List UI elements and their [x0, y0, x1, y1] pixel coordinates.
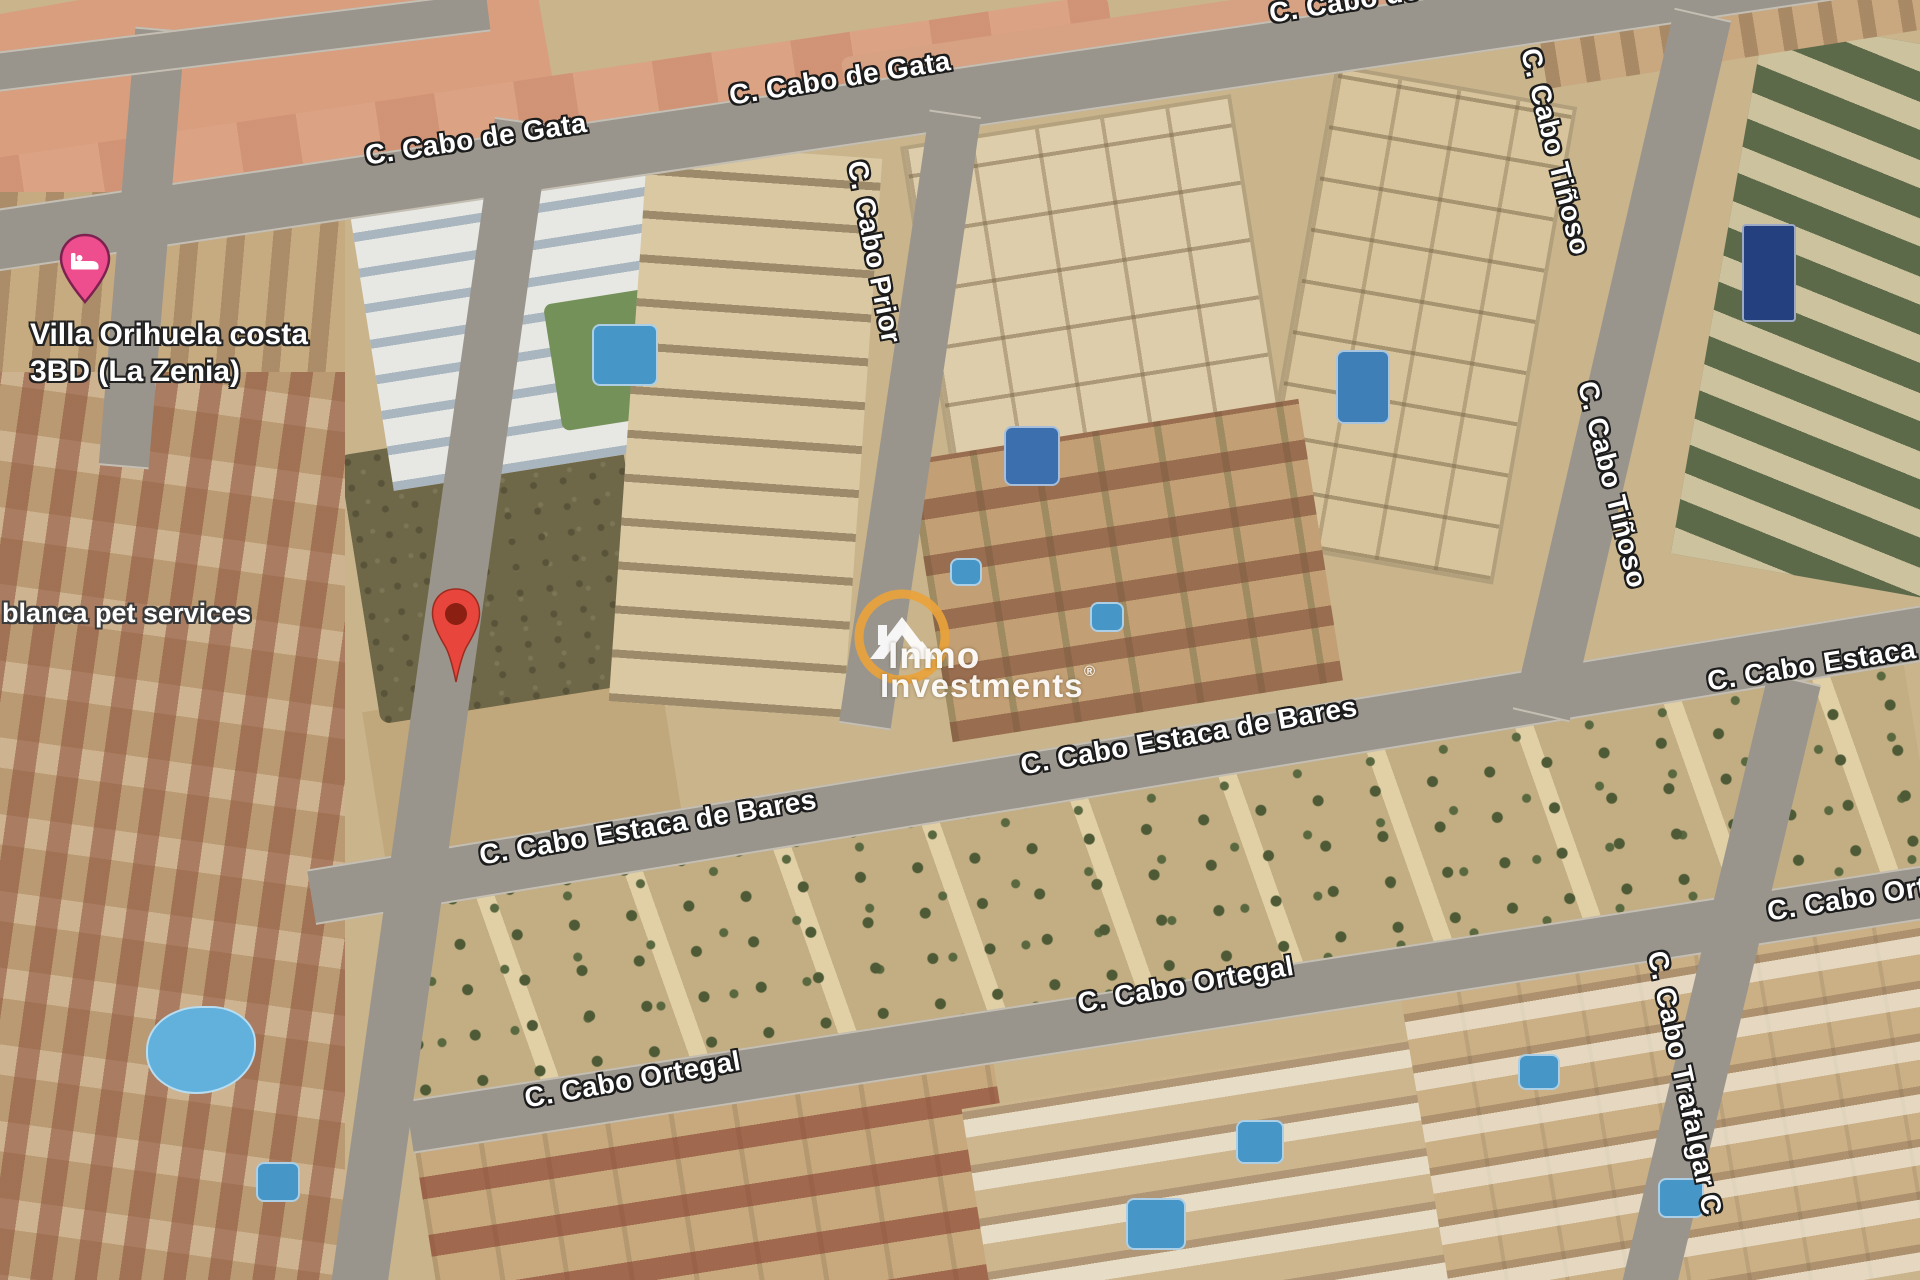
swimming-pool: [256, 1162, 300, 1202]
poi-label-line2: 3BD (La Zenia): [30, 353, 308, 390]
building-cluster-left-residential: [0, 372, 345, 1280]
swimming-pool: [1004, 426, 1060, 486]
swimming-pool: [950, 558, 982, 586]
poi-label-villa-orihuela[interactable]: Villa Orihuela costa 3BD (La Zenia): [30, 316, 308, 390]
swimming-pool: [1236, 1120, 1284, 1164]
poi-label-line1: Villa Orihuela costa: [30, 316, 308, 353]
destination-marker-icon[interactable]: [428, 586, 484, 686]
lodging-pin-icon[interactable]: [58, 232, 112, 306]
swimming-pool: [1742, 224, 1796, 322]
swimming-pool: [592, 324, 658, 386]
satellite-map[interactable]: C. Cabo de Gata C. Cabo de Gata C. Cabo …: [0, 0, 1920, 1280]
swimming-pool: [1090, 602, 1124, 632]
building-cluster-townhouse-rows: [609, 142, 882, 717]
swimming-pool: [1126, 1198, 1186, 1250]
swimming-pool: [1518, 1054, 1560, 1090]
swimming-pool: [1336, 350, 1390, 424]
poi-label-pet-services[interactable]: blanca pet services: [2, 598, 251, 629]
building-cluster-bottom-mid-villas: [962, 1038, 1450, 1280]
